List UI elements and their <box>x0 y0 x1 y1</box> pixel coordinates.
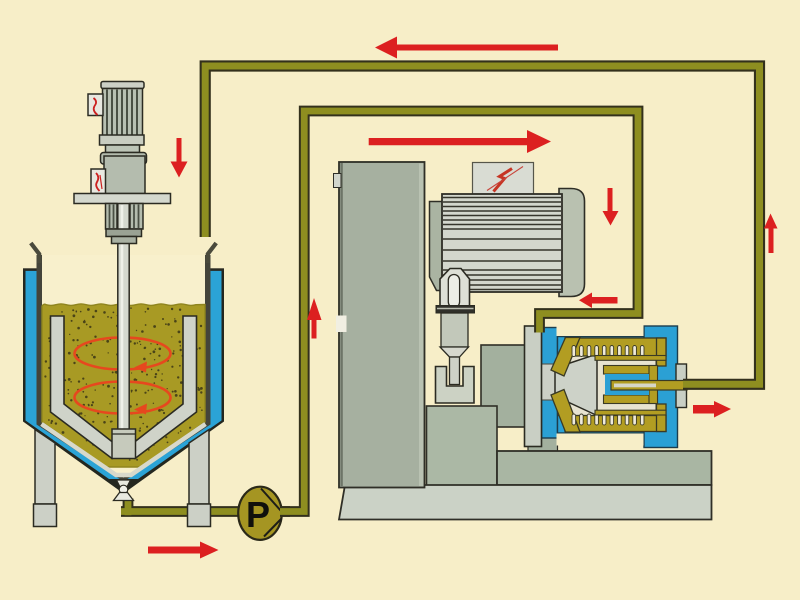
svg-text:P: P <box>246 494 270 535</box>
